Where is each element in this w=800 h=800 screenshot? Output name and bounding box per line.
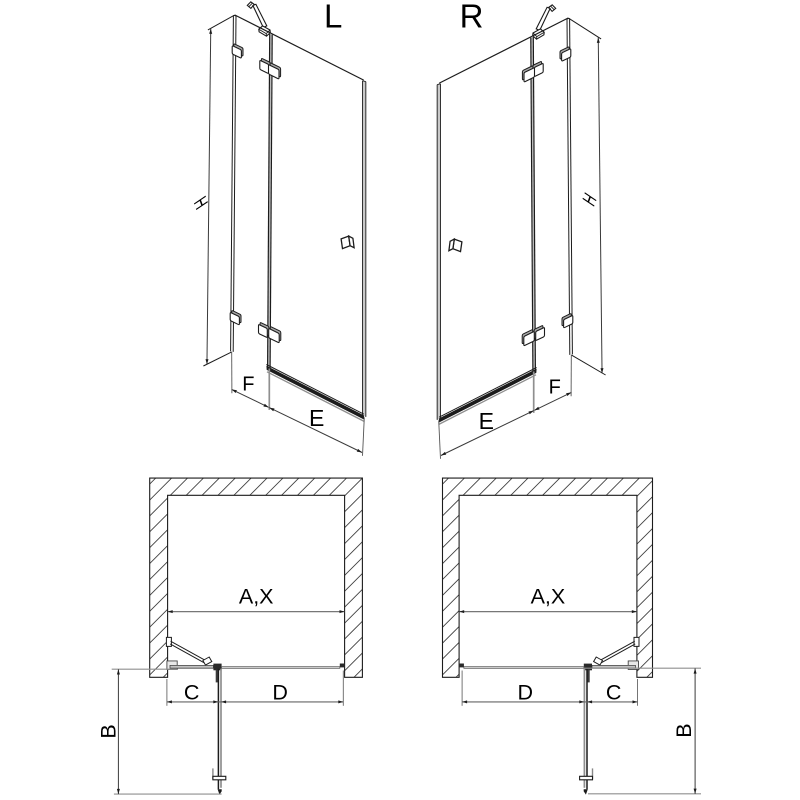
svg-text:B: B [97, 724, 121, 738]
svg-text:A,X: A,X [239, 585, 274, 609]
svg-text:D: D [272, 680, 288, 704]
svg-text:C: C [606, 680, 622, 704]
svg-text:A,X: A,X [531, 585, 566, 609]
svg-text:D: D [518, 680, 534, 704]
svg-text:F: F [549, 376, 561, 398]
svg-text:F: F [242, 373, 254, 395]
svg-text:L: L [324, 0, 342, 34]
svg-text:E: E [479, 408, 494, 434]
svg-text:B: B [672, 723, 696, 737]
svg-text:E: E [309, 405, 324, 431]
svg-text:R: R [460, 0, 484, 34]
svg-text:C: C [184, 680, 200, 704]
